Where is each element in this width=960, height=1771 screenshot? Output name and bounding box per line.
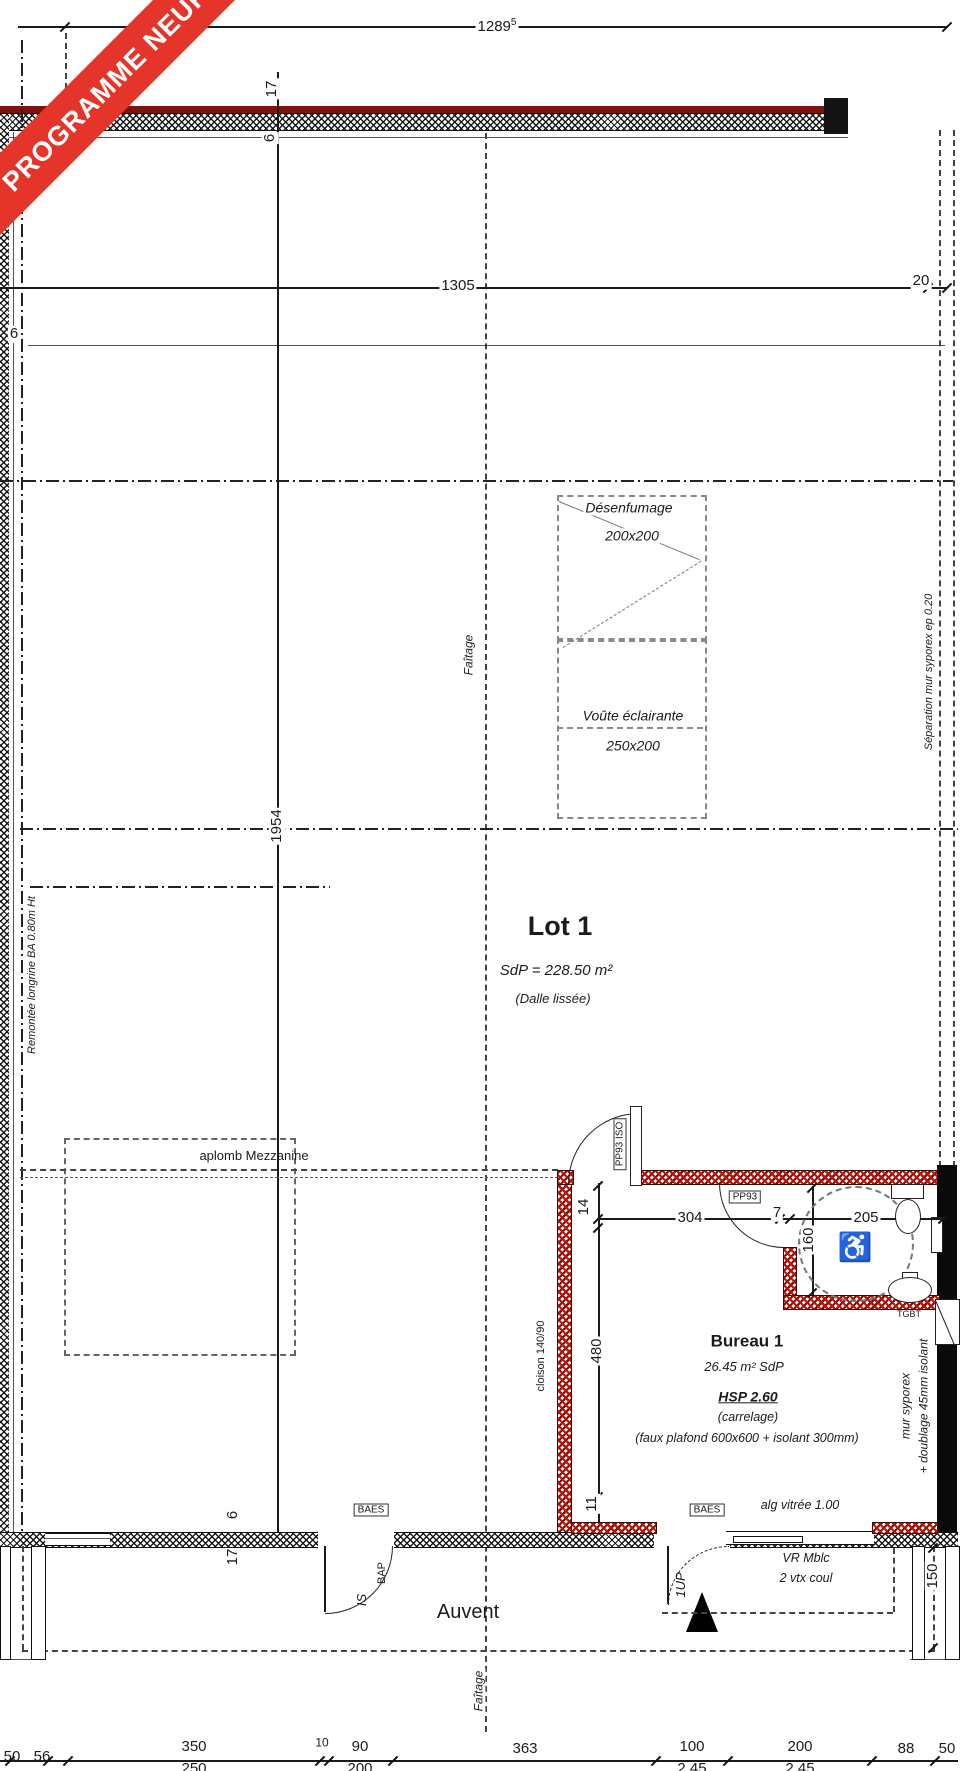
dim-b-363: 363 [510, 1741, 539, 1758]
mezzanine-edge-line [28, 345, 945, 346]
dim-b2-245a: 2.45 [675, 1761, 708, 1771]
dim-1305: 1305 [439, 278, 476, 295]
dim-11: 11 [584, 1494, 601, 1514]
toilet-bowl [895, 1199, 921, 1234]
bap-label: BAP [376, 1560, 388, 1586]
door-leaf-pp93-iso [630, 1106, 642, 1186]
dim-wall-bot-17: 17 [225, 1547, 242, 1568]
bureau-bottom-lining-right [872, 1522, 938, 1534]
window-left [45, 1533, 110, 1546]
aplomb-line-2 [20, 1177, 558, 1178]
vr-label-2: 2 vtx coul [778, 1572, 835, 1586]
top-wall [0, 113, 848, 131]
top-right-wall-stub [824, 98, 848, 134]
desenfumage-outline [557, 495, 707, 642]
bureau1-hsp: HSP 2.60 [716, 1389, 779, 1404]
bureau1-area: 26.45 m² SdP [702, 1360, 786, 1374]
dim-b-100: 100 [677, 1739, 706, 1756]
lot1-name: Lot 1 [526, 912, 595, 942]
toilet-tank [891, 1184, 924, 1199]
column-post [31, 1546, 46, 1660]
voute-size: 250x200 [604, 738, 662, 753]
dim-wall-bot-6: 6 [225, 1509, 242, 1521]
left-axis-line [21, 40, 23, 1545]
right-wall-inner [953, 130, 955, 1167]
tgbt-label: TGBT [895, 1310, 923, 1320]
auvent-outline-front [22, 1650, 935, 1652]
column-post [0, 1546, 11, 1660]
alg-vitree-label: alg vitrée 1.00 [759, 1499, 842, 1513]
post-cap-line [910, 1659, 958, 1660]
dim-6-left: 6 [8, 326, 20, 343]
is-label: IS [355, 1592, 369, 1608]
doublage-label: + doublage 45mm isolant [917, 1337, 930, 1475]
dim-b-10: 10 [313, 1736, 330, 1749]
desenfumage-size: 200x200 [603, 528, 661, 543]
dim-b-50: 50 [2, 1749, 23, 1766]
wheelchair-icon: ♿ [836, 1233, 875, 1264]
faitage-label-top: Faîtage [462, 633, 475, 678]
bureau-left-wall [557, 1170, 572, 1534]
right-wall-outer [939, 130, 941, 1167]
dim-b2-245b: 2.45 [783, 1761, 816, 1771]
baes-label-right: BAES [690, 1504, 725, 1517]
dim-304: 304 [675, 1210, 704, 1227]
dim-b-56: 56 [32, 1749, 53, 1766]
aplomb-mezzanine-label: aplomb Mezzanine [197, 1149, 310, 1163]
dim-1954: 1954 [269, 807, 286, 844]
dim-b-90: 90 [350, 1739, 371, 1756]
bureau1-ceiling: (faux plafond 600x600 + isolant 300mm) [633, 1432, 860, 1446]
bureau-bottom-lining-left [571, 1522, 657, 1534]
dim-b2-250: 250 [179, 1761, 208, 1771]
axis-line-3 [30, 886, 330, 888]
door-leaf-1up [667, 1546, 669, 1604]
dim-b-350: 350 [179, 1739, 208, 1756]
vr-label-1: VR Mblc [780, 1552, 831, 1566]
dim-wall-17: 17 [264, 79, 281, 100]
bureau-top-wall-b [638, 1170, 940, 1185]
dim-480: 480 [589, 1336, 606, 1365]
washbasin [888, 1277, 932, 1303]
axis-line-1 [0, 480, 953, 482]
dim-b-88: 88 [896, 1741, 917, 1758]
mur-syporex-label: mur syporex [899, 1371, 912, 1441]
dim-b-50r: 50 [937, 1741, 958, 1758]
floor-plan: 12895 17 6 1305 20 6 1954 Désenfumage 20… [0, 0, 960, 1771]
door-arc-pp93-iso [568, 1113, 639, 1184]
auvent-outline-left [22, 1546, 24, 1650]
window-left-mid-line [45, 1538, 110, 1539]
lot1-area: SdP = 228.50 m² [498, 963, 614, 980]
faitage-axis-line [485, 133, 487, 1732]
dim-160: 160 [801, 1225, 818, 1254]
faitage-label-bottom: Faîtage [472, 1669, 485, 1714]
top-wall-inner-face [0, 137, 848, 138]
axis-line-2 [20, 828, 958, 830]
remontee-longrine-label: Remontée longrine BA 0.80m Ht [26, 894, 38, 1056]
dim-top-width: 12895 [476, 17, 519, 36]
aplomb-line-1 [20, 1169, 558, 1171]
dim-b2-200: 200 [345, 1761, 374, 1771]
dim-wall-6: 6 [262, 132, 279, 144]
dim-b-200: 200 [785, 1739, 814, 1756]
dim-20: 20 [911, 273, 932, 290]
voute-label: Voûte éclairante [581, 708, 686, 723]
door-label-pp93-iso: PP93 ISO [614, 1118, 627, 1170]
lot1-floor: (Dalle lissée) [513, 992, 592, 1006]
desenfumage-label: Désenfumage [583, 500, 674, 515]
separation-syporex-label: Séparation mur syporex ep 0.20 [923, 592, 935, 753]
bureau1-name: Bureau 1 [709, 1333, 786, 1352]
dim-14: 14 [576, 1197, 593, 1218]
door-label-pp93: PP93 [729, 1191, 761, 1204]
door-leaf-is [324, 1546, 326, 1612]
baes-label-left: BAES [354, 1504, 389, 1517]
post-cap-line [0, 1659, 45, 1660]
dim-150: 150 [925, 1561, 942, 1590]
bureau1-floor: (carrelage) [716, 1411, 780, 1425]
cloison-label: cloison 140/90 [535, 1319, 547, 1394]
voute-mid-line [557, 727, 703, 729]
auvent-label: Auvent [435, 1601, 501, 1623]
entrance-platform-side [893, 1548, 895, 1612]
column-post [945, 1546, 960, 1660]
banner-text: PROGRAMME NEUF [0, 0, 214, 198]
entrance-platform-line [662, 1612, 893, 1614]
window-vr-sash [733, 1536, 803, 1543]
